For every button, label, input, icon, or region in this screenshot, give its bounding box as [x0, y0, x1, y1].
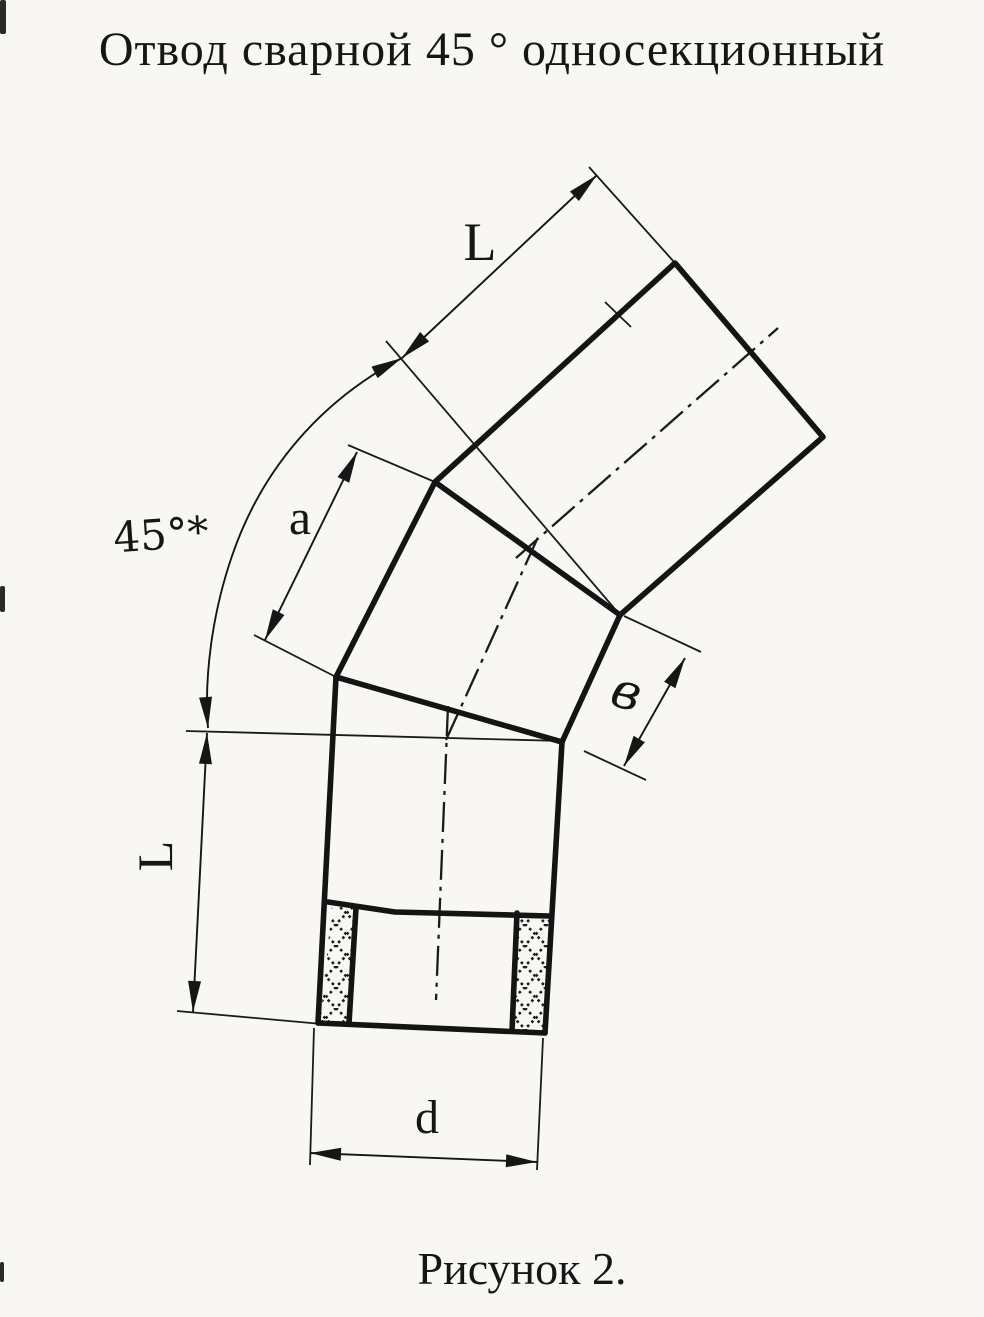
dim-line-L-left	[193, 733, 207, 1012]
top-pipe-outline	[435, 263, 823, 615]
label-left-length: L	[127, 841, 183, 872]
middle-section-left-edge	[336, 482, 435, 677]
ext-line-b-top	[624, 616, 701, 652]
ext-line-top-open-end	[589, 167, 675, 263]
scan-artifact-bottom-left	[0, 1262, 4, 1282]
label-top-length: L	[464, 212, 497, 272]
label-middle-length: a	[289, 489, 311, 545]
label-diameter: d	[415, 1091, 439, 1144]
scan-artifact-left-edge	[0, 586, 5, 612]
ext-line-a-top	[348, 445, 435, 482]
scanned-drawing-page: Отвод сварной 45 ° односекционный	[0, 0, 984, 1317]
centerline-top-pipe	[516, 328, 778, 558]
ext-line-top-joint	[386, 341, 620, 615]
ext-line-a-bottom	[254, 635, 336, 677]
ext-line-b-bottom	[584, 751, 646, 780]
label-bend-angle: 45°*	[112, 507, 211, 563]
dim-line-L-top	[402, 175, 597, 358]
pipe-outlines	[318, 263, 823, 1033]
figure-caption: Рисунок 2.	[30, 1242, 984, 1295]
ext-line-left-L-top	[186, 731, 562, 741]
centerline-bottom-pipe	[436, 706, 448, 1000]
scan-artifact-top-left	[0, 0, 6, 34]
centerline-middle-section	[446, 535, 539, 740]
ext-line-d-left	[310, 1028, 314, 1165]
ext-line-d-right	[537, 1038, 543, 1170]
elbow-technical-drawing: L a 45°* в L d	[0, 0, 984, 1317]
middle-section-end-edge	[562, 615, 620, 742]
label-end-width: в	[605, 660, 649, 724]
dim-line-d	[310, 1153, 537, 1162]
dim-line-a	[265, 452, 357, 640]
centerlines	[436, 328, 778, 1000]
dimension-labels: L a 45°* в L d	[112, 212, 649, 1144]
ext-line-left-L-bottom	[177, 1011, 322, 1024]
bottom-pipe-right-edge	[545, 742, 562, 1033]
